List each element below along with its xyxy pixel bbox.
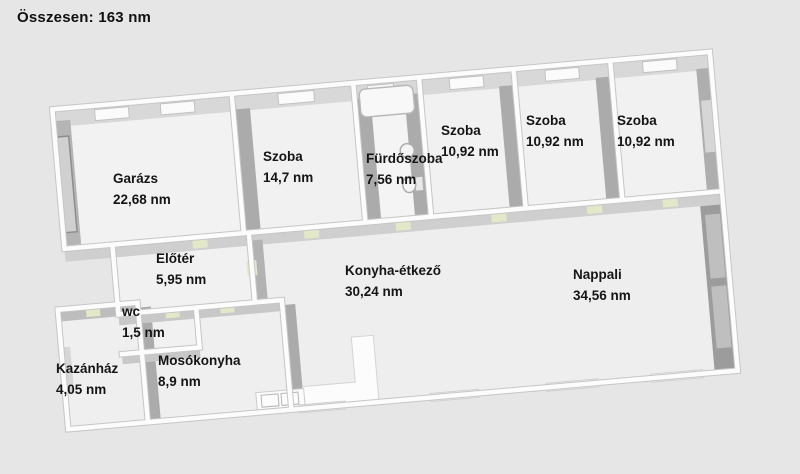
room-area: 34,56 nm	[573, 285, 631, 306]
room-name: Szoba	[263, 146, 313, 167]
room-name: Kazánház	[56, 358, 118, 379]
floorplan-viewport: Összesen: 163 nm Garázs 22,68 nm Szoba 1…	[0, 0, 800, 474]
room-area: 5,95 nm	[156, 269, 206, 290]
room-area: 10,92 nm	[441, 141, 499, 162]
floor-plan-svg	[0, 0, 800, 474]
window-garage-2	[160, 101, 195, 115]
room-area: 14,7 nm	[263, 167, 313, 188]
room-label-szoba-3: Szoba 10,92 nm	[526, 110, 584, 152]
room-name: Szoba	[441, 120, 499, 141]
room-name: Szoba	[526, 110, 584, 131]
room-area: 22,68 nm	[113, 189, 171, 210]
room-name: Előtér	[156, 248, 206, 269]
room-name: Nappali	[573, 264, 631, 285]
window-szoba-4	[642, 59, 677, 73]
window-szoba-3	[545, 67, 580, 81]
room-area: 10,92 nm	[526, 131, 584, 152]
room-label-kazanhaz: Kazánház 4,05 nm	[56, 358, 118, 400]
room-name: Szoba	[617, 110, 675, 131]
room-name: Fürdőszoba	[366, 148, 443, 169]
room-label-szoba-4: Szoba 10,92 nm	[617, 110, 675, 152]
room-area: 1,5 nm	[122, 322, 165, 343]
room-area: 4,05 nm	[56, 379, 118, 400]
room-area: 10,92 nm	[617, 131, 675, 152]
room-name: Garázs	[113, 168, 171, 189]
room-name: Konyha-étkező	[345, 260, 441, 281]
page-title: Összesen: 163 nm	[17, 9, 151, 26]
room-area: 8,9 nm	[158, 371, 241, 392]
window-szoba-2	[449, 76, 484, 90]
room-label-nappali: Nappali 34,56 nm	[573, 264, 631, 306]
room-label-furdoszoba: Fürdőszoba 7,56 nm	[366, 148, 443, 190]
room-label-mosokonyha: Mosókonyha 8,9 nm	[158, 350, 241, 392]
room-label-eloter: Előtér 5,95 nm	[156, 248, 206, 290]
room-label-garazs: Garázs 22,68 nm	[113, 168, 171, 210]
room-area: 7,56 nm	[366, 169, 443, 190]
room-name: Mosókonyha	[158, 350, 241, 371]
room-label-konyha-etkezo: Konyha-étkező 30,24 nm	[345, 260, 441, 302]
window-garage-1	[94, 107, 129, 121]
room-label-szoba-2: Szoba 10,92 nm	[441, 120, 499, 162]
room-label-szoba-1: Szoba 14,7 nm	[263, 146, 313, 188]
room-area: 30,24 nm	[345, 281, 441, 302]
bathtub	[359, 85, 415, 118]
room-label-wc: wc 1,5 nm	[122, 301, 165, 343]
room-name: wc	[122, 301, 165, 322]
